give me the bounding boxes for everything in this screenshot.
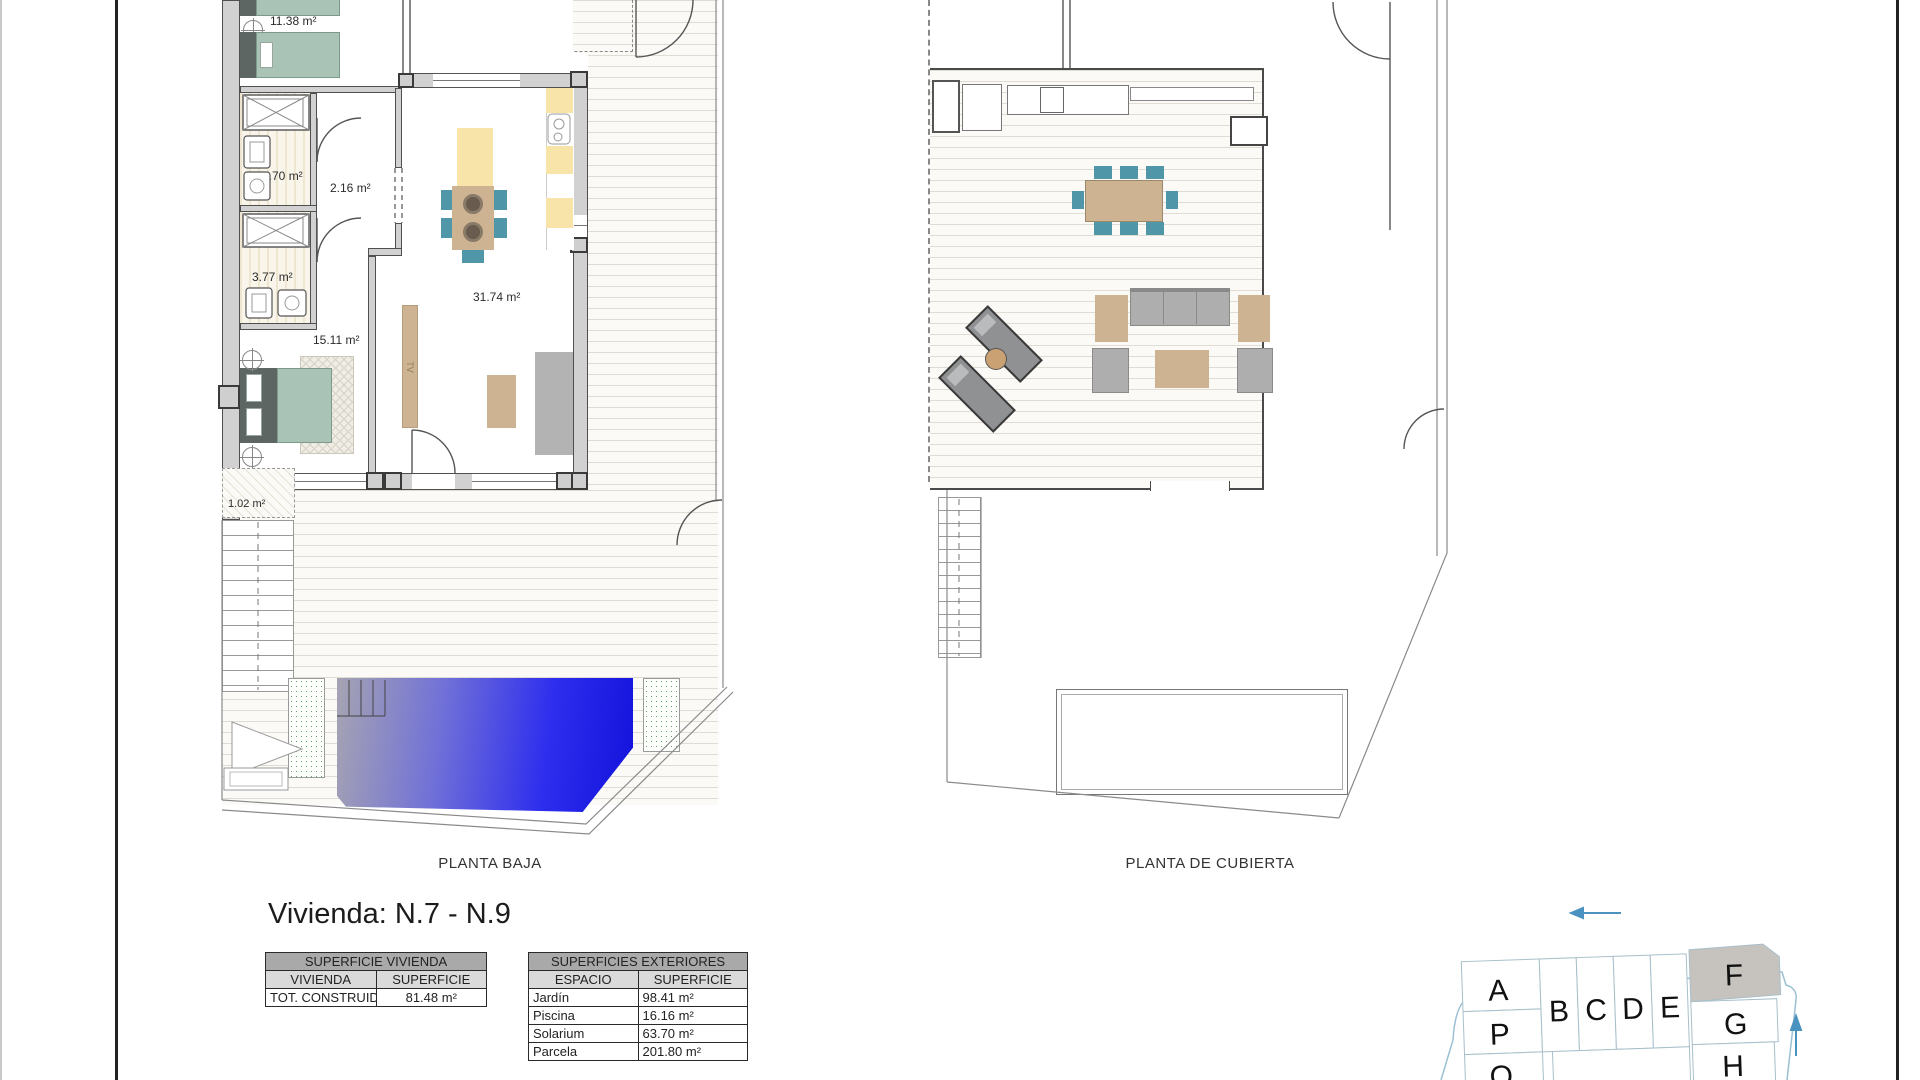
- column-header: ESPACIO: [529, 971, 639, 989]
- unit-label-h: H: [1722, 1050, 1745, 1080]
- unit-label-c: C: [1585, 994, 1608, 1028]
- table-row-value: 63.70 m²: [638, 1025, 748, 1043]
- table-superficies-exteriores: SUPERFICIES EXTERIORES ESPACIO SUPERFICI…: [528, 952, 748, 1061]
- table-row-value: 81.48 m²: [376, 989, 487, 1007]
- unit-label-b: B: [1549, 995, 1570, 1029]
- column-header: VIVIENDA: [266, 971, 377, 989]
- unit-label-g: G: [1723, 1008, 1747, 1042]
- column-header: SUPERFICIE: [376, 971, 487, 989]
- drawing-sheet: TV 11.38 m² 3.70 m² 2.16 m² 3.77 m² 15.1…: [0, 0, 1920, 1080]
- table-title: SUPERFICIES EXTERIORES: [529, 953, 748, 971]
- table-row-label: Jardín: [529, 989, 639, 1007]
- unit-label-e: E: [1659, 991, 1680, 1025]
- site-plan-key: A B C D E F G H P Q: [1435, 888, 1900, 1080]
- unit-label-q: Q: [1489, 1060, 1513, 1080]
- unit-label-f: F: [1724, 959, 1743, 993]
- entry-arrow-head-icon: [1791, 1016, 1801, 1030]
- unit-label-a: A: [1488, 974, 1509, 1008]
- caption-planta-baja: PLANTA BAJA: [400, 855, 580, 872]
- table-row-label: Solarium: [529, 1025, 639, 1043]
- caption-planta-cubierta: PLANTA DE CUBIERTA: [1090, 855, 1330, 872]
- site-boundary-left: [1441, 1040, 1453, 1080]
- page-title: Vivienda: N.7 - N.9: [268, 898, 511, 931]
- table-row-value: 98.41 m²: [638, 989, 748, 1007]
- street-arrow-head-icon: [1571, 908, 1583, 918]
- table-superficie-vivienda: SUPERFICIE VIVIENDA VIVIENDA SUPERFICIE …: [265, 952, 487, 1007]
- table-row-label: Piscina: [529, 1007, 639, 1025]
- unit-label-d: D: [1622, 992, 1645, 1026]
- unit-cell-lower: [1552, 1047, 1690, 1080]
- table-row-label: TOT. CONSTRUIDA: [266, 989, 377, 1007]
- table-title: SUPERFICIE VIVIENDA: [266, 953, 487, 971]
- table-row-value: 201.80 m²: [638, 1043, 748, 1061]
- table-row-value: 16.16 m²: [638, 1007, 748, 1025]
- column-header: SUPERFICIE: [638, 971, 748, 989]
- unit-label-p: P: [1489, 1018, 1510, 1052]
- table-row-label: Parcela: [529, 1043, 639, 1061]
